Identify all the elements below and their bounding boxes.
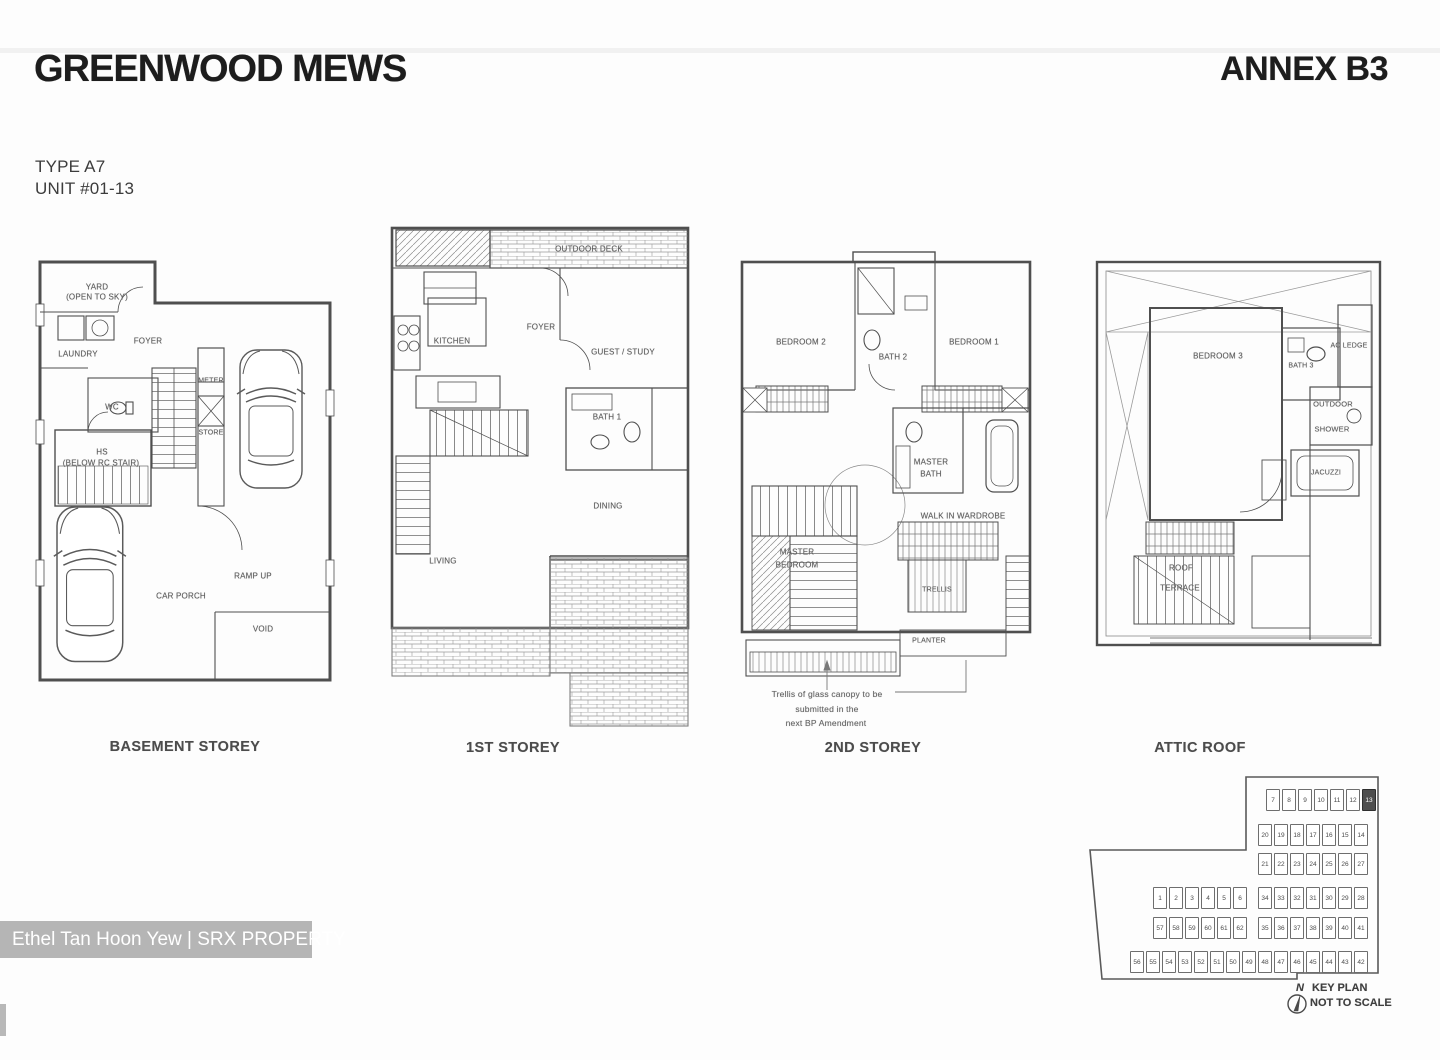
key-plan-unit-51: 51 bbox=[1210, 951, 1224, 973]
key-plan-unit-54: 54 bbox=[1162, 951, 1176, 973]
key-plan-unit-4: 4 bbox=[1201, 887, 1215, 909]
room-label-bath3: BATH 3 bbox=[1288, 363, 1313, 370]
key-plan-unit-16: 16 bbox=[1322, 824, 1336, 846]
trellis-note-line1: Trellis of glass canopy to be bbox=[772, 689, 883, 699]
room-label-roof-1: ROOF bbox=[1169, 564, 1193, 573]
room-label-laundry: LAUNDRY bbox=[58, 350, 98, 359]
room-label-master-bedroom-1: MASTER bbox=[780, 548, 815, 557]
key-plan-unit-12: 12 bbox=[1346, 789, 1360, 811]
key-plan-unit-50: 50 bbox=[1226, 951, 1240, 973]
room-label-planter: PLANTER bbox=[912, 638, 946, 645]
key-plan-unit-27: 27 bbox=[1354, 853, 1368, 875]
room-label-store: STORE bbox=[199, 430, 224, 437]
key-plan-unit-58: 58 bbox=[1169, 917, 1183, 939]
room-label-roof-2: TERRACE bbox=[1160, 584, 1200, 593]
room-label-outdoor: OUTDOOR bbox=[1313, 400, 1353, 409]
key-plan-unit-59: 59 bbox=[1185, 917, 1199, 939]
key-plan-unit-24: 24 bbox=[1306, 853, 1320, 875]
key-plan-unit-21: 21 bbox=[1258, 853, 1272, 875]
key-plan-unit-48: 48 bbox=[1258, 951, 1272, 973]
room-label-jacuzzi: JACUZZI bbox=[1311, 470, 1341, 477]
key-plan-unit-11: 11 bbox=[1330, 789, 1344, 811]
north-label: N bbox=[1296, 982, 1304, 994]
agent-watermark: Ethel Tan Hoon Yew | SRX PROPERTY bbox=[0, 921, 312, 958]
key-plan-row-f-right: 48474645444342 bbox=[1258, 951, 1368, 973]
key-plan-unit-33: 33 bbox=[1274, 887, 1288, 909]
room-label-ramp: RAMP UP bbox=[234, 572, 272, 581]
room-label-walk-in-wardrobe: WALK IN WARDROBE bbox=[921, 512, 1006, 521]
key-plan-subtitle: NOT TO SCALE bbox=[1310, 997, 1392, 1009]
room-label-master-bath-2: BATH bbox=[920, 470, 942, 479]
floorplan-page: { "page": { "title": "GREENWOOD MEWS", "… bbox=[0, 0, 1440, 1060]
room-label-hs: HS bbox=[96, 448, 108, 457]
room-label-carporch: CAR PORCH bbox=[156, 592, 206, 601]
room-label-guest-study: GUEST / STUDY bbox=[591, 348, 655, 357]
key-plan-unit-26: 26 bbox=[1338, 853, 1352, 875]
room-label-yard-sub: (OPEN TO SKY) bbox=[66, 293, 128, 302]
north-compass-icon bbox=[1288, 995, 1306, 1013]
key-plan-unit-28: 28 bbox=[1354, 887, 1368, 909]
caption-1st-storey: 1ST STOREY bbox=[466, 740, 560, 756]
caption-attic-roof: ATTIC ROOF bbox=[1154, 740, 1246, 756]
key-plan-unit-31: 31 bbox=[1306, 887, 1320, 909]
room-label-master-bath-1: MASTER bbox=[914, 458, 949, 467]
key-plan-row-e-left: 575859606162 bbox=[1153, 917, 1247, 939]
room-label-void: VOID bbox=[253, 625, 273, 634]
key-plan-unit-56: 56 bbox=[1130, 951, 1144, 973]
key-plan-unit-37: 37 bbox=[1290, 917, 1304, 939]
key-plan-unit-1: 1 bbox=[1153, 887, 1167, 909]
key-plan-unit-25: 25 bbox=[1322, 853, 1336, 875]
key-plan-unit-60: 60 bbox=[1201, 917, 1215, 939]
basement-plan-drawing bbox=[36, 262, 334, 680]
key-plan-unit-22: 22 bbox=[1274, 853, 1288, 875]
room-label-master-bedroom-2: BEDROOM bbox=[776, 561, 819, 570]
key-plan-unit-35: 35 bbox=[1258, 917, 1272, 939]
key-plan-unit-46: 46 bbox=[1290, 951, 1304, 973]
key-plan-title: KEY PLAN bbox=[1312, 982, 1367, 994]
room-label-yard: YARD bbox=[86, 283, 108, 292]
attic-roof-plan-drawing bbox=[1097, 262, 1380, 645]
key-plan-unit-10: 10 bbox=[1314, 789, 1328, 811]
key-plan-unit-17: 17 bbox=[1306, 824, 1320, 846]
key-plan-unit-49: 49 bbox=[1242, 951, 1256, 973]
room-label-foyer-b: FOYER bbox=[134, 337, 163, 346]
key-plan-unit-29: 29 bbox=[1338, 887, 1352, 909]
room-label-shower: SHOWER bbox=[1315, 425, 1350, 434]
key-plan-row-d-left: 123456 bbox=[1153, 887, 1247, 909]
key-plan-unit-62: 62 bbox=[1233, 917, 1247, 939]
trellis-note-line3: next BP Amendment bbox=[786, 718, 867, 728]
room-label-hs-sub: (BELOW RC STAIR) bbox=[63, 459, 139, 468]
key-plan-unit-13: 13 bbox=[1362, 789, 1376, 811]
key-plan-unit-44: 44 bbox=[1322, 951, 1336, 973]
key-plan-unit-53: 53 bbox=[1178, 951, 1192, 973]
key-plan-unit-39: 39 bbox=[1322, 917, 1336, 939]
key-plan-unit-40: 40 bbox=[1338, 917, 1352, 939]
key-plan-unit-36: 36 bbox=[1274, 917, 1288, 939]
key-plan-unit-15: 15 bbox=[1338, 824, 1352, 846]
key-plan-unit-42: 42 bbox=[1354, 951, 1368, 973]
key-plan-unit-19: 19 bbox=[1274, 824, 1288, 846]
room-label-meter: METER bbox=[198, 378, 224, 385]
room-label-ac-ledge: AC LEDGE bbox=[1331, 343, 1368, 350]
key-plan-unit-30: 30 bbox=[1322, 887, 1336, 909]
room-label-living: LIVING bbox=[429, 557, 456, 566]
key-plan-row-c: 21222324252627 bbox=[1258, 853, 1368, 875]
key-plan-unit-2: 2 bbox=[1169, 887, 1183, 909]
key-plan-row-e-right: 35363738394041 bbox=[1258, 917, 1368, 939]
key-plan-row-d-right: 34333231302928 bbox=[1258, 887, 1368, 909]
key-plan-unit-41: 41 bbox=[1354, 917, 1368, 939]
room-label-kitchen: KITCHEN bbox=[434, 337, 471, 346]
key-plan-unit-43: 43 bbox=[1338, 951, 1352, 973]
room-label-bedroom2: BEDROOM 2 bbox=[776, 338, 826, 347]
second-storey-plan-drawing bbox=[742, 252, 1030, 692]
first-storey-plan-drawing bbox=[392, 228, 688, 726]
key-plan-unit-20: 20 bbox=[1258, 824, 1272, 846]
caption-basement-storey: BASEMENT STOREY bbox=[110, 739, 261, 755]
key-plan-unit-7: 7 bbox=[1266, 789, 1280, 811]
scan-smudge bbox=[0, 1004, 6, 1036]
key-plan-unit-38: 38 bbox=[1306, 917, 1320, 939]
room-label-outdoor-deck: OUTDOOR DECK bbox=[555, 245, 623, 254]
room-label-dining: DINING bbox=[593, 502, 622, 511]
room-label-bath2: BATH 2 bbox=[879, 353, 908, 362]
key-plan-unit-18: 18 bbox=[1290, 824, 1304, 846]
key-plan-unit-8: 8 bbox=[1282, 789, 1296, 811]
key-plan-unit-5: 5 bbox=[1217, 887, 1231, 909]
key-plan-unit-3: 3 bbox=[1185, 887, 1199, 909]
key-plan-unit-32: 32 bbox=[1290, 887, 1304, 909]
key-plan-unit-57: 57 bbox=[1153, 917, 1167, 939]
room-label-bedroom3: BEDROOM 3 bbox=[1193, 352, 1243, 361]
room-label-bath1: BATH 1 bbox=[593, 413, 622, 422]
room-label-trellis: TRELLIS bbox=[922, 587, 952, 594]
key-plan-row-a: 78910111213 bbox=[1266, 789, 1376, 811]
key-plan-unit-14: 14 bbox=[1354, 824, 1368, 846]
key-plan-unit-47: 47 bbox=[1274, 951, 1288, 973]
room-label-foyer-1: FOYER bbox=[527, 323, 556, 332]
key-plan-unit-61: 61 bbox=[1217, 917, 1231, 939]
key-plan-unit-23: 23 bbox=[1290, 853, 1304, 875]
key-plan-unit-55: 55 bbox=[1146, 951, 1160, 973]
key-plan-unit-52: 52 bbox=[1194, 951, 1208, 973]
room-label-bedroom1: BEDROOM 1 bbox=[949, 338, 999, 347]
key-plan-row-f-left: 5655545352515049 bbox=[1130, 951, 1256, 973]
key-plan-row-b: 20191817161514 bbox=[1258, 824, 1368, 846]
key-plan-unit-9: 9 bbox=[1298, 789, 1312, 811]
key-plan-unit-45: 45 bbox=[1306, 951, 1320, 973]
caption-2nd-storey: 2ND STOREY bbox=[825, 740, 921, 756]
room-label-wc: WC bbox=[105, 403, 119, 412]
trellis-note-line2: submitted in the bbox=[795, 704, 858, 714]
key-plan-unit-34: 34 bbox=[1258, 887, 1272, 909]
key-plan-unit-6: 6 bbox=[1233, 887, 1247, 909]
